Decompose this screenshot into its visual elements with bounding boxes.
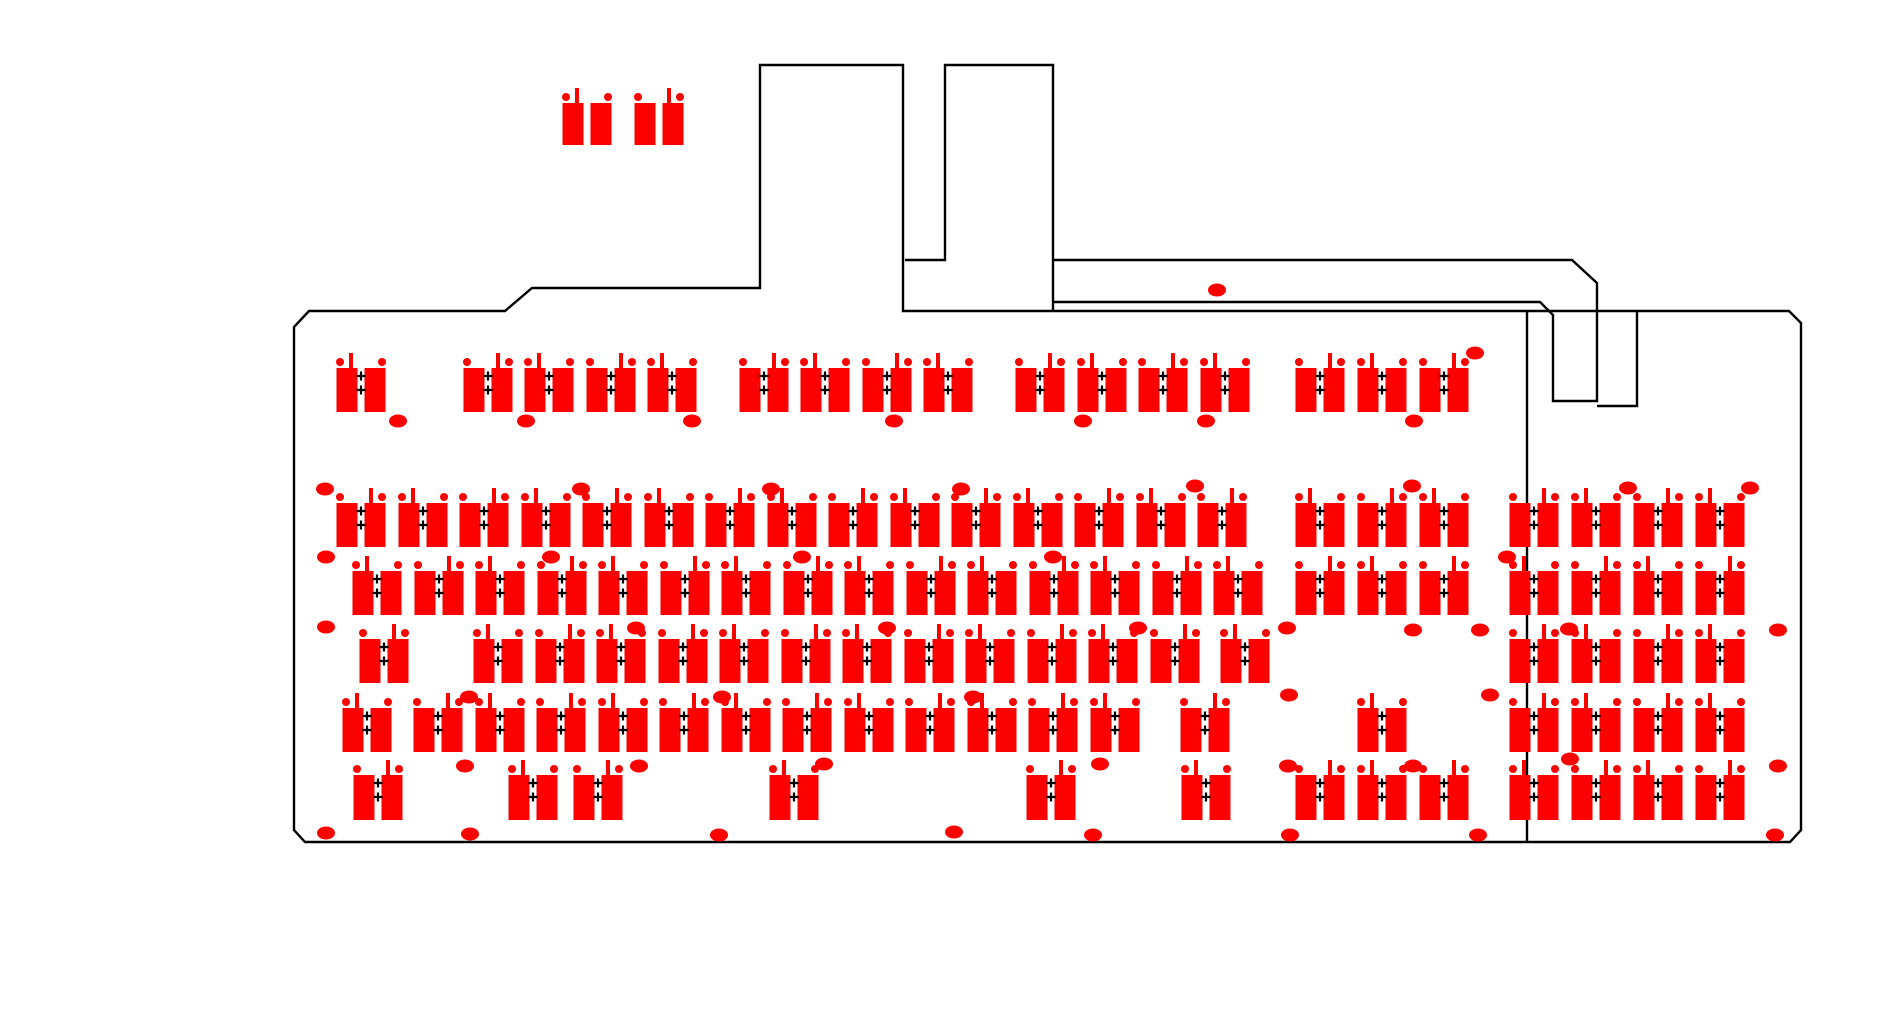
pin-stub [937, 624, 941, 641]
pad-left [843, 639, 864, 683]
pad-left [583, 503, 604, 547]
cross-mark [556, 657, 565, 666]
cross-mark [1530, 726, 1539, 735]
pin-hole-dot [1077, 358, 1085, 366]
pin-hole-dot [1357, 698, 1365, 706]
cross-mark [849, 507, 858, 516]
switch-footprint [508, 760, 558, 820]
pad-right [371, 708, 392, 752]
pin-hole-dot [394, 561, 402, 569]
switch-footprint [1026, 760, 1076, 820]
pad-right [1167, 368, 1188, 412]
pin-hole-dot [842, 358, 850, 366]
pad-right [492, 368, 513, 412]
pin-stub [488, 693, 492, 710]
mounting-hole [1281, 829, 1299, 842]
cross-mark [1654, 643, 1663, 652]
pad-right [488, 503, 509, 547]
pin-stub [780, 488, 784, 505]
pin-hole-dot [862, 358, 870, 366]
cross-mark [380, 657, 389, 666]
pad-left [1358, 775, 1379, 820]
cross-mark [357, 507, 366, 516]
cross-mark [944, 372, 953, 381]
cross-mark [865, 712, 874, 721]
switch-footprint [1015, 353, 1065, 412]
pin-hole-dot [598, 561, 606, 569]
pin-stub [568, 624, 572, 641]
pin-hole-dot [1028, 698, 1036, 706]
cross-mark [944, 386, 953, 395]
pad-left [1182, 775, 1203, 820]
pin-stub [1452, 556, 1456, 573]
pin-hole-dot [473, 629, 481, 637]
pad-right [1662, 775, 1683, 820]
cross-mark [679, 643, 688, 652]
cross-mark [681, 589, 690, 598]
switch-footprint [475, 693, 525, 752]
mounting-hole [630, 760, 648, 773]
pad-right [442, 708, 463, 752]
pad-right [1538, 775, 1559, 820]
cross-mark [374, 793, 383, 802]
pin-hole-dot [521, 493, 529, 501]
pin-hole-dot [946, 629, 954, 637]
pad-right [810, 639, 831, 683]
pin-stub [657, 488, 661, 505]
switch-footprint [1088, 624, 1138, 683]
pad-left [635, 103, 656, 145]
cross-mark [607, 372, 616, 381]
mounting-hole [1469, 829, 1487, 842]
cross-mark [542, 521, 551, 530]
cross-mark [1716, 521, 1725, 530]
pin-hole-dot [1242, 358, 1250, 366]
pin-hole-dot [1399, 493, 1407, 501]
pin-stub [365, 556, 369, 573]
cross-mark [542, 507, 551, 516]
pad-right [873, 708, 894, 752]
switch-footprint [644, 488, 694, 547]
switch-footprint [1200, 353, 1250, 412]
pin-hole-dot [1027, 629, 1035, 637]
pin-stub [534, 488, 538, 505]
cross-mark [665, 507, 674, 516]
pin-stub [1542, 488, 1546, 505]
pin-stub [1604, 760, 1608, 777]
pin-stub [1048, 353, 1052, 370]
switch-footprint [1571, 556, 1621, 615]
pad-left [474, 639, 495, 683]
pin-hole-dot [647, 358, 655, 366]
pad-left [509, 775, 530, 820]
cross-mark [496, 575, 505, 584]
pad-left [1016, 368, 1037, 412]
pad-left [415, 571, 436, 615]
cross-mark [802, 643, 811, 652]
mounting-hole [1766, 829, 1784, 842]
pin-stub [1226, 556, 1230, 573]
pin-hole-dot [336, 493, 344, 501]
mounting-hole [710, 829, 728, 842]
pad-right [388, 639, 409, 683]
pin-stub [349, 353, 353, 370]
cross-mark [557, 726, 566, 735]
pin-hole-dot [384, 698, 392, 706]
pad-right [625, 639, 646, 683]
cross-mark [925, 643, 934, 652]
pin-hole-dot [1116, 493, 1124, 501]
mounting-hole [572, 483, 590, 496]
pin-stub [938, 693, 942, 710]
pad-left [460, 503, 481, 547]
cross-mark [1440, 779, 1449, 788]
pin-hole-dot [1337, 561, 1345, 569]
cross-mark [1592, 589, 1601, 598]
mounting-hole [1186, 480, 1204, 493]
pad-right [566, 571, 587, 615]
pin-stub [1584, 488, 1588, 505]
pad-right [1209, 708, 1230, 752]
switch-footprint [1633, 624, 1683, 683]
cross-mark [1109, 643, 1118, 652]
pad-left [740, 368, 761, 412]
mounting-hole [1471, 624, 1489, 637]
pin-stub [1728, 556, 1732, 573]
pin-hole-dot [1138, 358, 1146, 366]
cross-mark [1234, 575, 1243, 584]
cross-mark [484, 372, 493, 381]
cross-mark [373, 589, 382, 598]
pad-right [1181, 571, 1202, 615]
mounting-hole [1280, 689, 1298, 702]
cross-mark [926, 726, 935, 735]
cross-mark [821, 372, 830, 381]
pad-right [980, 503, 1001, 547]
mounting-hole [885, 415, 903, 428]
pin-stub [615, 488, 619, 505]
pin-hole-dot [660, 561, 668, 569]
switch-footprint [1419, 488, 1469, 547]
pad-right [382, 775, 403, 820]
mounting-hole [1044, 551, 1062, 564]
cross-mark [1654, 793, 1663, 802]
pad-left [722, 571, 743, 615]
pin-hole-dot [1069, 629, 1077, 637]
switch-footprint [573, 760, 623, 820]
pin-hole-dot [1551, 493, 1559, 501]
switch-footprint [1357, 693, 1407, 752]
pin-hole-dot [634, 93, 642, 101]
switch-footprint [1357, 488, 1407, 547]
pad-right [871, 639, 892, 683]
pad-right [996, 708, 1017, 752]
switch-footprint [414, 556, 464, 615]
pad-right [1210, 775, 1231, 820]
pin-hole-dot [1029, 561, 1037, 569]
mounting-hole [627, 622, 645, 635]
pin-hole-dot [1551, 698, 1559, 706]
pin-hole-dot [1007, 629, 1015, 637]
pin-hole-dot [1613, 629, 1621, 637]
cross-mark [1111, 712, 1120, 721]
cross-mark [434, 726, 443, 735]
pad-right [1324, 775, 1345, 820]
cross-mark [1716, 726, 1725, 735]
switch-footprint [658, 624, 708, 683]
mounting-hole [815, 758, 833, 771]
cross-mark [760, 386, 769, 395]
pad-left [1296, 503, 1317, 547]
cross-mark [1049, 726, 1058, 735]
cross-mark [1050, 589, 1059, 598]
cross-mark [1440, 507, 1449, 516]
pad-left [770, 775, 791, 820]
pad-left [1214, 571, 1235, 615]
switch-footprint [582, 488, 632, 547]
pad-left [1296, 571, 1317, 615]
cross-mark [496, 726, 505, 735]
pad-right [673, 503, 694, 547]
pad-left [1089, 639, 1110, 683]
pin-hole-dot [1222, 698, 1230, 706]
pin-hole-dot [1197, 493, 1205, 501]
pad-right [1662, 571, 1683, 615]
cross-mark [556, 643, 565, 652]
pad-right [919, 503, 940, 547]
pin-hole-dot [1026, 765, 1034, 773]
pin-hole-dot [1295, 493, 1303, 501]
notch-outline [1597, 311, 1637, 406]
cross-mark [1378, 793, 1387, 802]
cross-mark [1316, 779, 1325, 788]
pad-left [354, 775, 375, 820]
pad-left [924, 368, 945, 412]
pin-hole-dot [809, 493, 817, 501]
pin-stub [691, 624, 695, 641]
cross-mark [1111, 726, 1120, 735]
cross-mark [1592, 657, 1601, 666]
breakaway-tab-outline [905, 65, 1053, 311]
pin-hole-dot [342, 698, 350, 706]
pin-hole-dot [1737, 698, 1745, 706]
pin-hole-dot [515, 629, 523, 637]
switch-footprint [1213, 556, 1263, 615]
pad-left [574, 775, 595, 820]
pin-hole-dot [1695, 493, 1703, 501]
pad-left [1139, 368, 1160, 412]
pin-hole-dot [1737, 765, 1745, 773]
pin-hole-dot [844, 561, 852, 569]
pad-right [1538, 708, 1559, 752]
pin-hole-dot [1152, 561, 1160, 569]
pin-hole-dot [906, 561, 914, 569]
pad-left [648, 368, 669, 412]
cross-mark [1173, 575, 1182, 584]
pad-right [1055, 775, 1076, 820]
switch-footprint [1695, 693, 1745, 752]
pad-left [784, 571, 805, 615]
pin-stub [1101, 624, 1105, 641]
pad-right [1386, 775, 1407, 820]
cross-mark [740, 657, 749, 666]
pin-hole-dot [781, 629, 789, 637]
pin-hole-dot [1068, 765, 1076, 773]
pad-left [537, 708, 558, 752]
pin-hole-dot [563, 493, 571, 501]
pad-left [522, 503, 543, 547]
cross-mark [1378, 726, 1387, 735]
pin-hole-dot [1461, 561, 1469, 569]
mounting-hole [878, 622, 896, 635]
pad-right [1538, 503, 1559, 547]
pin-stub [1059, 760, 1063, 777]
switch-footprint [781, 624, 831, 683]
pad-right [1448, 775, 1469, 820]
pin-hole-dot [781, 358, 789, 366]
pad-left [1510, 503, 1531, 547]
switch-footprint [1197, 488, 1247, 547]
switch-footprint [1571, 488, 1621, 547]
pad-left [1358, 503, 1379, 547]
cross-mark [925, 657, 934, 666]
pad-right [1106, 368, 1127, 412]
switch-footprint [1419, 556, 1469, 615]
pin-hole-dot [1633, 629, 1641, 637]
mounting-hole [517, 415, 535, 428]
pin-hole-dot [800, 358, 808, 366]
pin-hole-dot [967, 561, 975, 569]
pin-hole-dot [1695, 561, 1703, 569]
switch-footprint [459, 488, 509, 547]
pad-right [1226, 503, 1247, 547]
pad-left [1027, 775, 1048, 820]
pin-stub [1308, 488, 1312, 505]
pin-stub [782, 760, 786, 777]
cross-mark [1241, 657, 1250, 666]
switch-footprint [782, 693, 832, 752]
switch-footprint [536, 693, 586, 752]
pin-hole-dot [1675, 561, 1683, 569]
cross-mark [1716, 712, 1725, 721]
pin-hole-dot [1509, 629, 1517, 637]
cross-mark [1234, 589, 1243, 598]
cross-mark [1378, 521, 1387, 530]
switch-footprint [535, 624, 585, 683]
cross-mark [821, 386, 830, 395]
pad-right [1724, 708, 1745, 752]
pin-hole-dot [537, 561, 545, 569]
cross-mark [363, 726, 372, 735]
pin-hole-dot [1255, 561, 1263, 569]
pin-stub [1171, 353, 1175, 370]
pin-hole-dot [905, 698, 913, 706]
switch-footprint [844, 556, 894, 615]
cross-mark [617, 643, 626, 652]
pad-left [353, 571, 374, 615]
pin-stub [1183, 624, 1187, 641]
pad-left [1572, 639, 1593, 683]
pin-hole-dot [769, 765, 777, 773]
pin-stub [693, 556, 697, 573]
pad-left [1151, 639, 1172, 683]
cross-mark [1592, 643, 1601, 652]
pad-right [1324, 503, 1345, 547]
pad-right [1724, 571, 1745, 615]
cross-mark [1654, 575, 1663, 584]
pin-hole-dot [1399, 561, 1407, 569]
pin-hole-dot [783, 561, 791, 569]
pad-right [1600, 571, 1621, 615]
pin-stub [492, 488, 496, 505]
switch-footprint [336, 353, 386, 412]
pin-hole-dot [395, 765, 403, 773]
pin-stub [1604, 556, 1608, 573]
pad-right [996, 571, 1017, 615]
cross-mark [619, 712, 628, 721]
pin-hole-dot [1074, 493, 1082, 501]
cross-mark [1098, 372, 1107, 381]
pin-hole-dot [993, 493, 1001, 501]
switch-footprint [475, 556, 525, 615]
pad-left [768, 503, 789, 547]
switch-footprint [1419, 353, 1469, 412]
cross-mark [1440, 372, 1449, 381]
cross-mark [1592, 779, 1601, 788]
pad-left [1420, 775, 1441, 820]
pin-hole-dot [1509, 765, 1517, 773]
pad-right [1165, 503, 1186, 547]
pin-hole-dot [1613, 698, 1621, 706]
pad-right [1448, 503, 1469, 547]
cross-mark [1530, 521, 1539, 530]
switch-footprint [1357, 760, 1407, 820]
cross-mark [1378, 575, 1387, 584]
cross-mark [1592, 726, 1601, 735]
pad-right [443, 571, 464, 615]
pad-left [1510, 571, 1531, 615]
pad-left [720, 639, 741, 683]
pin-hole-dot [1295, 561, 1303, 569]
pin-stub [1061, 693, 1065, 710]
cross-mark [803, 712, 812, 721]
cross-mark [1592, 712, 1601, 721]
switch-footprint [1357, 556, 1407, 615]
pin-hole-dot [763, 698, 771, 706]
switch-footprint [463, 353, 513, 412]
pin-stub [855, 624, 859, 641]
cross-mark [1654, 657, 1663, 666]
pad-right [1724, 639, 1745, 683]
pin-hole-dot [1737, 561, 1745, 569]
pad-left [360, 639, 381, 683]
mounting-hole [317, 551, 335, 564]
pad-left [599, 708, 620, 752]
pin-hole-dot [721, 561, 729, 569]
pad-left [1420, 368, 1441, 412]
pin-hole-dot [1571, 698, 1579, 706]
cross-mark [1530, 575, 1539, 584]
pin-stub [939, 556, 943, 573]
switch-footprint [951, 488, 1001, 547]
cross-mark [1218, 521, 1227, 530]
switch-footprint [1136, 488, 1186, 547]
cross-mark [742, 589, 751, 598]
cross-mark [1654, 726, 1663, 735]
switch-footprint [1181, 760, 1231, 820]
pin-stub [1646, 760, 1650, 777]
switch-footprint [1509, 624, 1559, 683]
